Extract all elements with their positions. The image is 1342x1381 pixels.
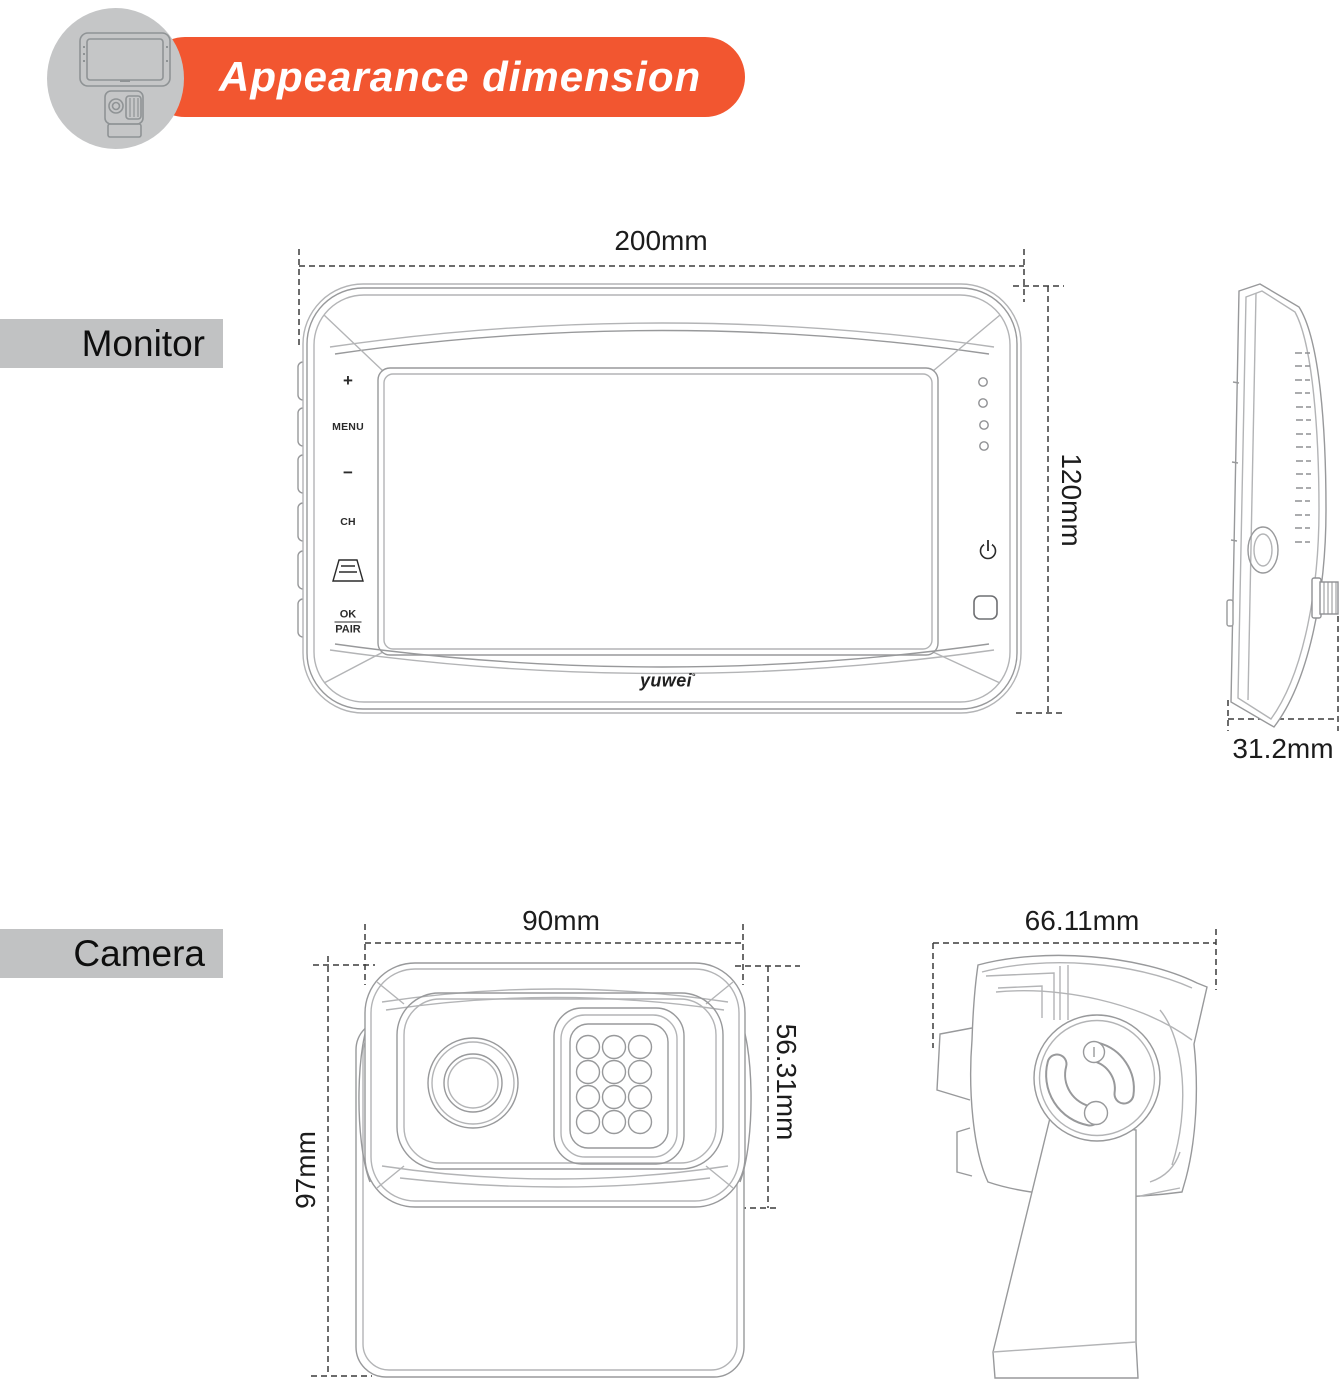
volume-down-button-label: − [343, 463, 353, 483]
brand-logo: yuwei° [640, 671, 696, 692]
ok-pair-divider [335, 622, 362, 623]
monitor-depth-dimension: 31.2mm [1232, 733, 1333, 765]
monitor-height-dimension: 120mm [1055, 453, 1087, 546]
ok-pair-button-label: OK PAIR [335, 609, 362, 636]
volume-up-button-label: + [343, 371, 353, 391]
appearance-dimension-page: Appearance dimension Monitor Camera [0, 0, 1342, 1381]
camera-width-dimension: 90mm [522, 905, 600, 937]
badge-camera-sketch [105, 91, 143, 137]
badge-monitor-sketch [80, 33, 170, 86]
monitor-front-drawing [298, 284, 1021, 713]
camera-depth-dimension: 66.11mm [1025, 905, 1140, 937]
channel-button-label: CH [340, 516, 356, 528]
camera-front-drawing [356, 963, 751, 1377]
camera-body-height-dimension: 56.31mm [770, 1024, 802, 1141]
monitor-side-drawing [1227, 284, 1338, 727]
camera-side-drawing [937, 955, 1207, 1378]
monitor-width-dimension: 200mm [614, 225, 707, 257]
camera-height-dimension: 97mm [290, 1131, 322, 1209]
menu-button-label: MENU [332, 421, 364, 433]
